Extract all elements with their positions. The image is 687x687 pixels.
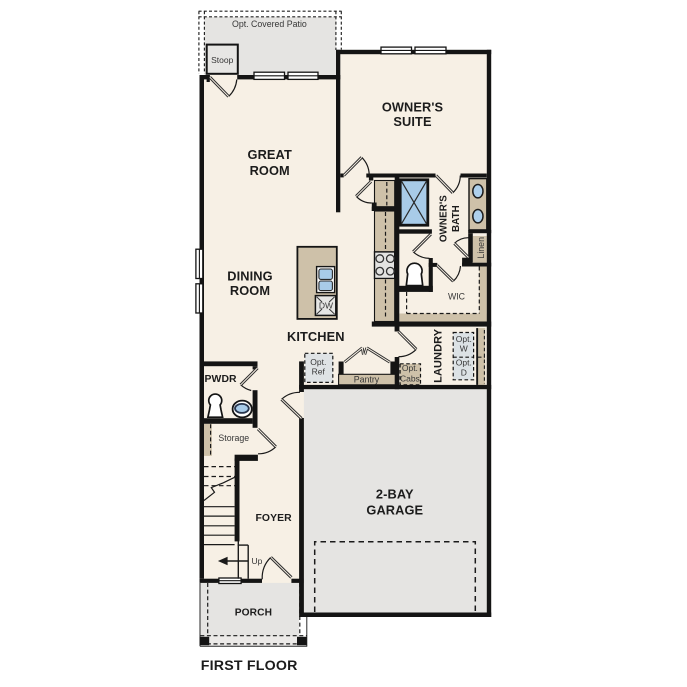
svg-text:LAUNDRY: LAUNDRY	[433, 328, 445, 383]
svg-text:Opt.: Opt.	[402, 363, 418, 373]
svg-text:GARAGE: GARAGE	[366, 503, 423, 518]
svg-text:Pantry: Pantry	[354, 375, 380, 385]
svg-text:Stoop: Stoop	[211, 55, 233, 65]
svg-text:Storage: Storage	[218, 433, 249, 443]
svg-text:Cabs: Cabs	[400, 374, 420, 384]
svg-text:Opt.: Opt.	[456, 334, 472, 344]
svg-text:ROOM: ROOM	[250, 163, 290, 178]
svg-text:OWNER'S: OWNER'S	[438, 195, 449, 242]
svg-text:Opt.: Opt.	[456, 357, 472, 367]
svg-text:Opt.: Opt.	[310, 357, 326, 367]
svg-text:PORCH: PORCH	[235, 608, 272, 619]
svg-text:Linen: Linen	[476, 237, 486, 259]
svg-text:Opt. Covered Patio: Opt. Covered Patio	[232, 19, 307, 29]
svg-text:FIRST FLOOR: FIRST FLOOR	[201, 658, 298, 674]
svg-text:Ref: Ref	[312, 367, 326, 377]
svg-text:2-BAY: 2-BAY	[376, 486, 414, 501]
svg-text:PWDR: PWDR	[205, 374, 238, 385]
svg-text:GREAT: GREAT	[248, 147, 292, 162]
svg-text:SUITE: SUITE	[393, 114, 432, 129]
svg-text:FOYER: FOYER	[255, 513, 292, 524]
svg-text:BATH: BATH	[451, 205, 462, 232]
svg-text:D: D	[461, 367, 467, 377]
svg-text:DINING: DINING	[227, 269, 272, 284]
svg-text:Up: Up	[252, 556, 263, 566]
svg-text:KITCHEN: KITCHEN	[287, 329, 345, 344]
svg-text:ROOM: ROOM	[230, 283, 270, 298]
svg-text:OWNER'S: OWNER'S	[382, 100, 444, 115]
svg-text:WIC: WIC	[448, 292, 466, 302]
svg-text:W: W	[460, 344, 468, 354]
svg-text:DW: DW	[319, 301, 333, 311]
